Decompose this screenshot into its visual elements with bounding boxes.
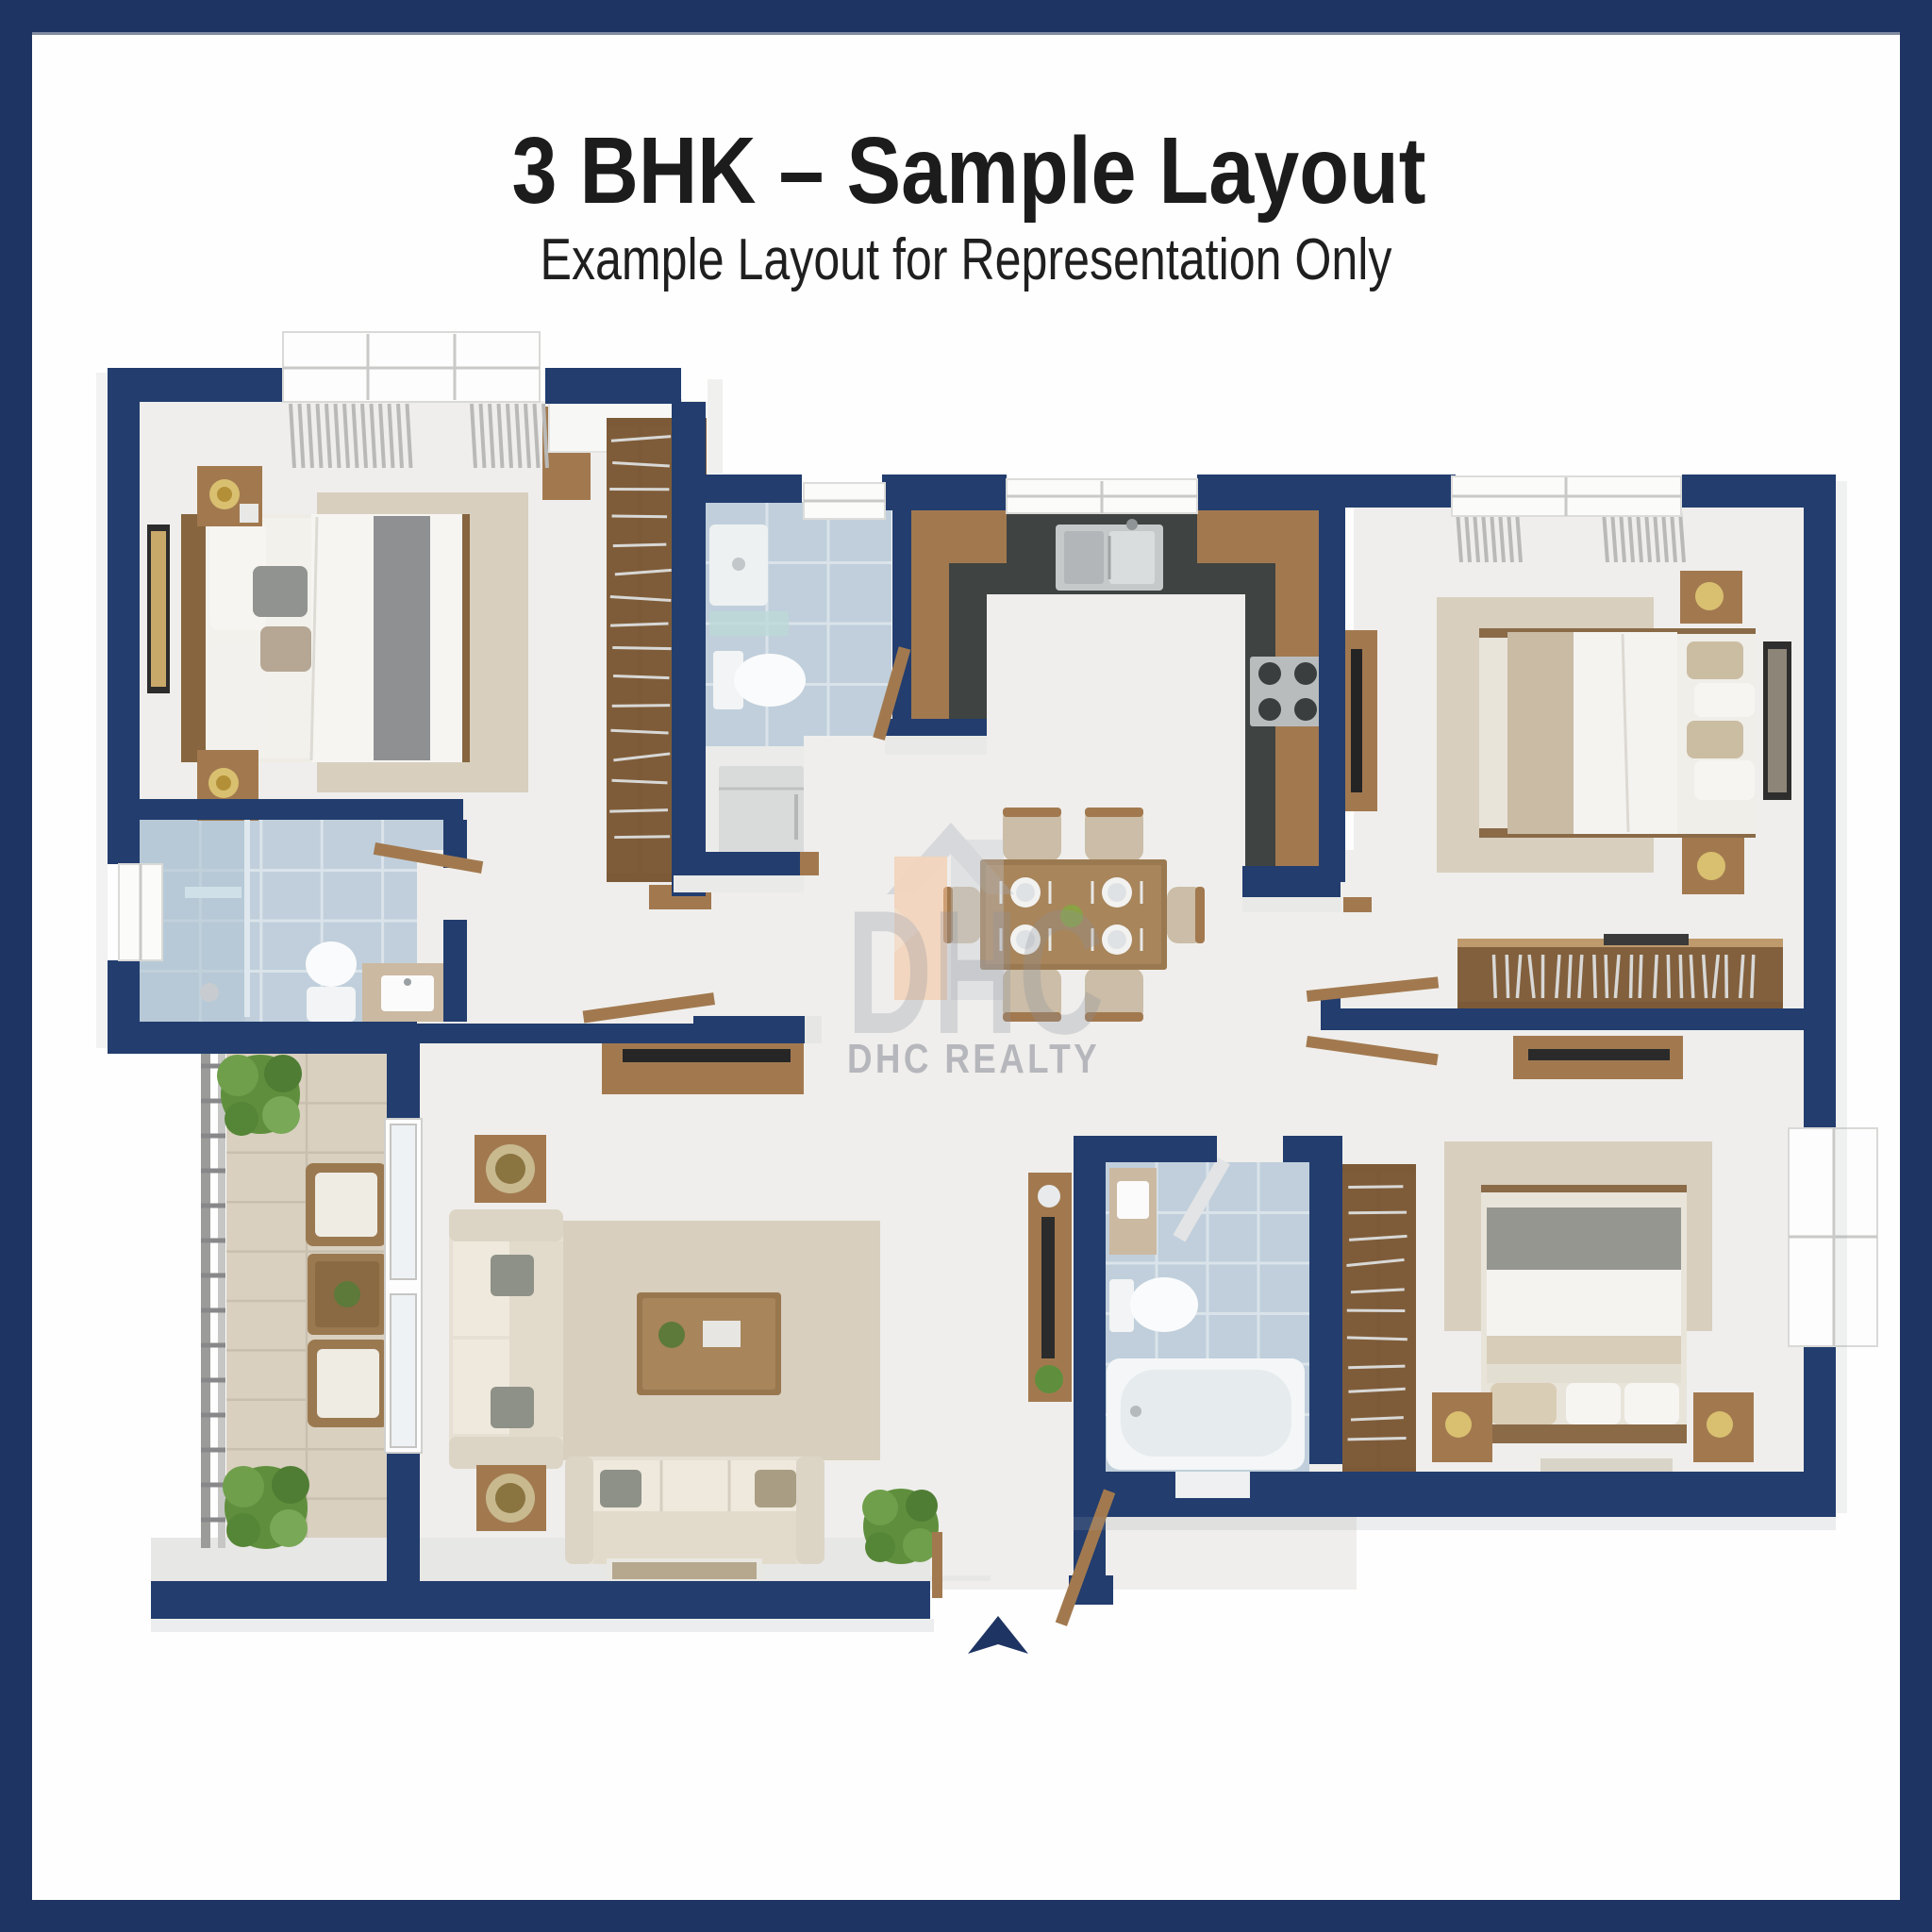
svg-text:3 BHK – Sample Layout: 3 BHK – Sample Layout — [512, 118, 1426, 224]
svg-text:DHC REALTY: DHC REALTY — [847, 1036, 1100, 1082]
svg-text:Example Layout for Representat: Example Layout for Representation Only — [541, 227, 1392, 292]
